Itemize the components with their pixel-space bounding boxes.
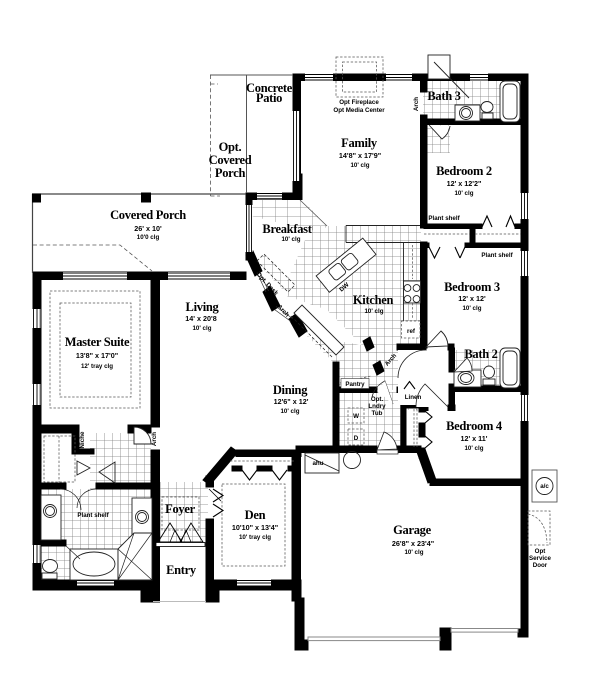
svg-text:ref: ref	[407, 328, 416, 335]
svg-text:ahu: ahu	[312, 460, 323, 467]
svg-text:Arch: Arch	[151, 432, 158, 446]
svg-text:26' x 10': 26' x 10'	[134, 224, 162, 233]
svg-text:Niche: Niche	[79, 431, 86, 448]
svg-text:13'8" x 17'0": 13'8" x 17'0"	[76, 351, 118, 360]
svg-text:Living: Living	[186, 300, 220, 314]
svg-text:Opt.: Opt.	[219, 140, 242, 154]
svg-text:10' clg: 10' clg	[280, 408, 299, 415]
svg-text:Porch: Porch	[215, 166, 246, 180]
svg-text:Bedroom 4: Bedroom 4	[446, 419, 503, 433]
svg-text:Den: Den	[245, 508, 266, 522]
svg-text:12'6" x 12': 12'6" x 12'	[274, 397, 309, 406]
svg-text:Family: Family	[341, 136, 378, 150]
svg-text:D: D	[354, 435, 359, 442]
svg-text:26'8" x 23'4": 26'8" x 23'4"	[392, 539, 434, 548]
svg-text:Dining: Dining	[273, 383, 308, 397]
svg-text:10'10" x 13'4": 10'10" x 13'4"	[232, 523, 278, 532]
svg-text:Covered: Covered	[209, 153, 252, 167]
svg-text:10' clg: 10' clg	[192, 325, 211, 332]
svg-text:Foyer: Foyer	[165, 502, 195, 516]
svg-text:Covered Porch: Covered Porch	[110, 208, 186, 222]
svg-text:Pantry: Pantry	[345, 381, 365, 388]
svg-text:Entry: Entry	[166, 563, 197, 577]
svg-text:10' clg: 10' clg	[454, 190, 473, 197]
svg-text:Garage: Garage	[393, 523, 432, 537]
svg-text:12' x 12': 12' x 12'	[458, 294, 486, 303]
svg-text:Door: Door	[533, 562, 548, 569]
svg-text:Opt: Opt	[535, 548, 546, 555]
svg-text:Kitchen: Kitchen	[353, 293, 394, 307]
svg-text:Lndry: Lndry	[368, 403, 386, 410]
svg-text:Plant shelf: Plant shelf	[77, 512, 109, 519]
svg-text:Opt.: Opt.	[371, 396, 384, 403]
svg-text:Linen: Linen	[405, 394, 422, 401]
svg-text:Plant shelf: Plant shelf	[481, 252, 513, 259]
svg-text:10' clg: 10' clg	[404, 549, 423, 556]
svg-text:Opt Fireplace: Opt Fireplace	[339, 99, 379, 106]
svg-text:Master Suite: Master Suite	[65, 335, 130, 349]
svg-text:14' x 20'8: 14' x 20'8	[185, 314, 216, 323]
svg-text:Breakfast: Breakfast	[262, 222, 312, 236]
svg-text:a/c: a/c	[540, 483, 549, 490]
svg-text:Bedroom 3: Bedroom 3	[444, 280, 500, 294]
svg-text:Opt Media Center: Opt Media Center	[333, 107, 385, 114]
svg-text:12' x 12'2": 12' x 12'2"	[447, 179, 482, 188]
svg-text:Tub: Tub	[372, 410, 383, 417]
svg-text:12' x 11': 12' x 11'	[460, 434, 487, 443]
svg-text:W: W	[353, 413, 359, 420]
svg-text:Plant shelf: Plant shelf	[428, 215, 460, 222]
svg-text:10' clg: 10' clg	[350, 162, 369, 169]
svg-text:10' clg: 10' clg	[462, 305, 481, 312]
svg-text:Patio: Patio	[256, 91, 282, 105]
svg-text:Bedroom 2: Bedroom 2	[436, 164, 492, 178]
svg-text:10' clg: 10' clg	[464, 445, 483, 452]
svg-text:10' clg: 10' clg	[281, 236, 300, 243]
svg-text:Bath 2: Bath 2	[464, 347, 497, 361]
svg-text:10'0 clg: 10'0 clg	[137, 234, 160, 241]
svg-text:14'8" x 17'9": 14'8" x 17'9"	[339, 151, 381, 160]
svg-text:Bath 3: Bath 3	[427, 89, 460, 103]
svg-text:10' tray clg: 10' tray clg	[239, 534, 271, 541]
svg-text:10' clg: 10' clg	[364, 308, 383, 315]
svg-text:Service: Service	[529, 555, 552, 562]
svg-text:Arch: Arch	[413, 97, 420, 111]
svg-text:12' tray clg: 12' tray clg	[81, 363, 113, 370]
